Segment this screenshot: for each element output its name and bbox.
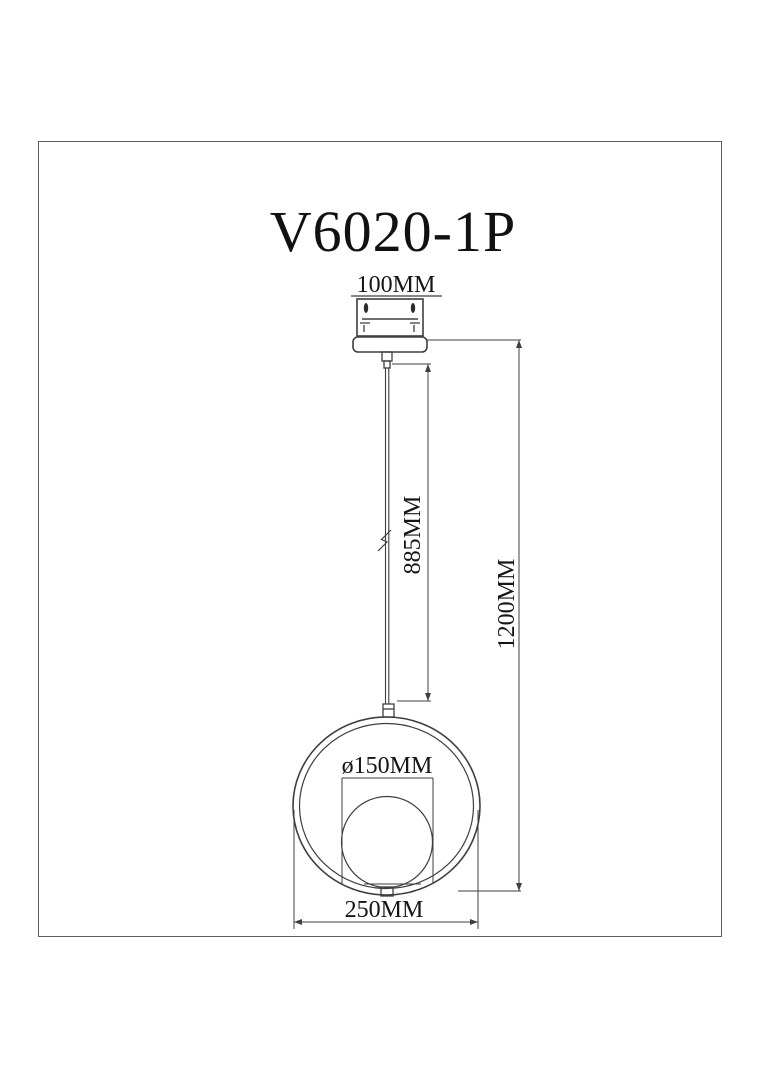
suspension-wire (378, 368, 391, 704)
dimension-label-overall-height: 1200MM (495, 559, 519, 650)
keyhole-mark-left (360, 323, 370, 332)
dimension-label-cord-length: 885MM (401, 496, 425, 575)
cord-grip (382, 352, 392, 361)
screw-slot-left (364, 303, 368, 313)
dimension-globe-diameter-lines (342, 778, 433, 884)
drawing-page: V6020-1P (0, 0, 763, 1080)
cord-grip-tip (384, 361, 390, 368)
dimension-label-canopy-width: 100MM (357, 273, 436, 297)
dimension-label-globe-diameter: ø150MM (342, 754, 433, 778)
ferrule (383, 704, 394, 717)
ceiling-plate (357, 299, 423, 336)
metal-ring (293, 717, 480, 895)
dimension-label-ring-width: 250MM (345, 898, 424, 922)
glass-globe (342, 797, 433, 897)
keyhole-mark-right (410, 323, 420, 332)
screw-slot-right (411, 303, 415, 313)
canopy (353, 337, 427, 368)
